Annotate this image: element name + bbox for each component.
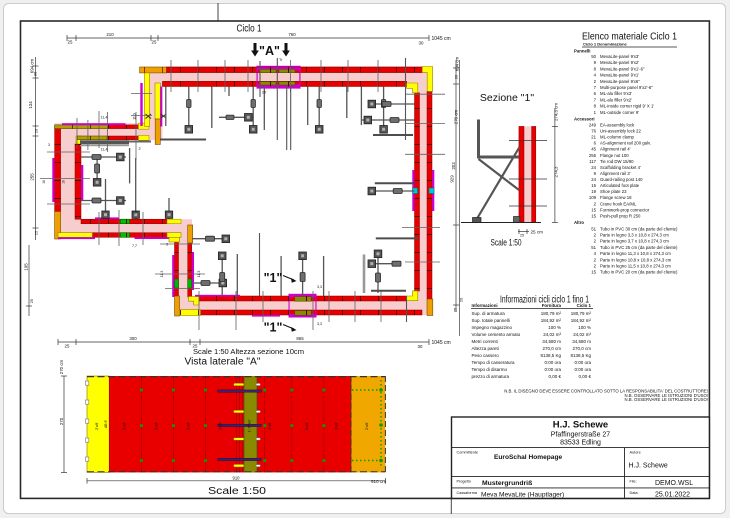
- svg-text:195: 195: [24, 263, 29, 271]
- svg-text:0:00 ora: 0:00 ora: [544, 367, 561, 372]
- svg-text:3'x9': 3'x9': [218, 422, 223, 430]
- svg-text:929: 929: [450, 175, 455, 183]
- svg-text:Peso cassero: Peso cassero: [472, 353, 500, 358]
- svg-text:24,02 m³: 24,02 m³: [543, 332, 561, 337]
- svg-text:Scale 1:50 Altezza sezione 1: Scale 1:50 Altezza sezione 10cm: [193, 347, 304, 356]
- svg-text:Accessori: Accessori: [574, 116, 595, 121]
- svg-text:910: 910: [233, 476, 241, 481]
- svg-text:3,3: 3,3: [317, 322, 322, 326]
- svg-text:1045 cm: 1045 cm: [432, 36, 451, 42]
- svg-text:694 cm: 694 cm: [30, 58, 35, 73]
- svg-text:Tubo in PVC 30 cm (da parte de: Tubo in PVC 30 cm (da parte del cliente): [600, 226, 678, 231]
- svg-text:File:: File:: [630, 480, 637, 484]
- svg-text:prezzo di armatura: prezzo di armatura: [472, 374, 510, 379]
- svg-text:MevaLite-panel 9'x1': MevaLite-panel 9'x1': [600, 73, 639, 78]
- svg-text:184,92 m²: 184,92 m²: [571, 318, 592, 323]
- svg-text:ML-column clamp: ML-column clamp: [600, 135, 635, 140]
- svg-text:Parte in legno 10,8 x 10,8 x 2: Parte in legno 10,8 x 10,8 x 274,3 cm: [600, 257, 672, 262]
- svg-text:EA-assembly lock: EA-assembly lock: [600, 122, 635, 127]
- svg-text:Guard-railing post 140: Guard-railing post 140: [600, 177, 643, 182]
- svg-text:20: 20: [34, 128, 39, 133]
- svg-text:7,7: 7,7: [132, 244, 137, 248]
- svg-text:25 cm: 25 cm: [531, 230, 544, 235]
- svg-text:Vista laterale "A": Vista laterale "A": [185, 357, 261, 368]
- svg-text:ML-alu filler 9'x2': ML-alu filler 9'x2': [600, 97, 632, 102]
- svg-text:Shoe plate 23: Shoe plate 23: [600, 189, 627, 194]
- svg-text:2'x9': 2'x9': [364, 422, 369, 430]
- svg-text:11,4: 11,4: [101, 148, 108, 152]
- svg-text:100 %: 100 %: [578, 325, 591, 330]
- svg-text:Tubo in PVC 20 cm (da parte de: Tubo in PVC 20 cm (da parte del cliente): [600, 270, 678, 275]
- svg-text:270: 270: [59, 417, 64, 425]
- svg-text:30: 30: [33, 71, 38, 76]
- svg-text:30: 30: [454, 74, 459, 79]
- svg-text:Committente: Committente: [457, 451, 479, 455]
- svg-text:117: 117: [589, 159, 596, 164]
- svg-text:30: 30: [419, 41, 424, 46]
- svg-text:Impegno magazzino: Impegno magazzino: [472, 325, 513, 330]
- svg-text:Ciclo 1: Ciclo 1: [237, 24, 262, 35]
- svg-text:Parte in legno 3,7 x 10,8 x 27: Parte in legno 3,7 x 10,8 x 274,3 cm: [600, 239, 669, 244]
- svg-text:15: 15: [591, 270, 596, 275]
- svg-text:Tie rod DW 15/90: Tie rod DW 15/90: [600, 159, 634, 164]
- svg-text:20: 20: [262, 91, 266, 95]
- svg-text:Ciclo 1: Ciclo 1: [577, 303, 592, 308]
- svg-text:270 cm: 270 cm: [59, 359, 64, 374]
- svg-text:Fornitura: Fornitura: [542, 303, 562, 308]
- svg-text:Cassaforma: Cassaforma: [457, 491, 478, 495]
- svg-text:25.01.2022: 25.01.2022: [655, 492, 690, 499]
- svg-text:DEMO.WSL: DEMO.WSL: [655, 480, 693, 487]
- svg-text:Autore: Autore: [630, 451, 641, 455]
- svg-text:24: 24: [591, 165, 596, 170]
- svg-text:H.J. Schewe: H.J. Schewe: [553, 420, 608, 431]
- svg-text:16: 16: [42, 180, 46, 184]
- svg-text:25: 25: [68, 40, 73, 45]
- svg-text:Flange nut 100: Flange nut 100: [600, 153, 629, 158]
- svg-text:0:00 ora: 0:00 ora: [574, 367, 591, 372]
- svg-text:249: 249: [589, 122, 597, 127]
- svg-text:34,580 m: 34,580 m: [572, 339, 591, 344]
- svg-text:11,3: 11,3: [160, 271, 164, 278]
- svg-text:Scaffolding bracket 4': Scaffolding bracket 4': [600, 165, 641, 170]
- svg-text:16: 16: [62, 180, 66, 184]
- svg-text:Crane hook EA/ML: Crane hook EA/ML: [600, 201, 637, 206]
- svg-text:Push-pull prop R 250: Push-pull prop R 250: [600, 213, 641, 218]
- svg-text:3,3: 3,3: [317, 285, 322, 289]
- svg-text:Alignment rail 4': Alignment rail 4': [600, 147, 631, 152]
- svg-text:ML-outside corner 9': ML-outside corner 9': [600, 110, 639, 115]
- svg-text:8138,5 Kg: 8138,5 Kg: [540, 353, 561, 358]
- svg-text:255: 255: [589, 153, 597, 158]
- svg-text:51: 51: [591, 226, 596, 231]
- svg-text:15: 15: [591, 207, 596, 212]
- svg-text:30: 30: [418, 344, 423, 349]
- svg-text:3'x9': 3'x9': [121, 422, 126, 430]
- svg-text:AB 9': AB 9': [104, 420, 108, 428]
- svg-text:Meva MevaLite (Hauptlager): Meva MevaLite (Hauptlager): [481, 491, 564, 498]
- svg-text:Volume cemento armato: Volume cemento armato: [472, 332, 521, 337]
- svg-text:Sezione "1": Sezione "1": [480, 92, 534, 104]
- svg-text:203: 203: [451, 162, 456, 170]
- svg-text:300: 300: [129, 336, 137, 341]
- svg-text:N.B. OSSERVARE LE ISTRUZIONI D: N.B. OSSERVARE LE ISTRUZIONI D'USO!: [624, 397, 708, 402]
- svg-text:Alignment rail 3': Alignment rail 3': [600, 171, 631, 176]
- svg-text:34,580 m: 34,580 m: [542, 339, 561, 344]
- svg-text:134: 134: [28, 101, 33, 109]
- svg-text:8138,5 Kg: 8138,5 Kg: [570, 353, 591, 358]
- svg-text:51: 51: [591, 245, 596, 250]
- svg-text:MevaLite-panel 9'x3': MevaLite-panel 9'x3': [600, 54, 639, 59]
- svg-text:Altezza pareti: Altezza pareti: [472, 346, 499, 351]
- svg-text:Tempo di disarmo: Tempo di disarmo: [472, 367, 508, 372]
- svg-text:694 cm: 694 cm: [455, 56, 460, 71]
- svg-text:2'x9': 2'x9': [94, 422, 99, 430]
- svg-text:Data:: Data:: [630, 491, 639, 495]
- svg-text:Pfaffingerstraße 27: Pfaffingerstraße 27: [551, 432, 611, 439]
- svg-text:24: 24: [591, 177, 596, 182]
- svg-text:1'-6"x9': 1'-6"x9': [247, 419, 252, 432]
- svg-text:20: 20: [459, 297, 464, 302]
- svg-text:25: 25: [152, 40, 157, 45]
- svg-text:270,0 cm: 270,0 cm: [542, 346, 561, 351]
- svg-text:Mustergrundriß: Mustergrundriß: [482, 480, 532, 487]
- svg-text:25: 25: [453, 307, 458, 312]
- svg-text:"1": "1": [264, 271, 283, 285]
- svg-text:ML-inside corner rigid 9' X 1': ML-inside corner rigid 9' X 1': [600, 104, 654, 109]
- svg-text:Altro: Altro: [574, 220, 584, 225]
- svg-text:184,92 m²: 184,92 m²: [541, 318, 562, 323]
- svg-text:109: 109: [589, 195, 597, 200]
- svg-text:Progetto: Progetto: [457, 480, 471, 484]
- svg-text:MevaLite-panel 9'x6": MevaLite-panel 9'x6": [600, 79, 640, 84]
- svg-text:15: 15: [591, 183, 596, 188]
- svg-text:1045 cm: 1045 cm: [432, 340, 451, 346]
- svg-text:3'x9': 3'x9': [267, 422, 272, 430]
- svg-text:180,79 m²: 180,79 m²: [541, 311, 562, 316]
- svg-text:180,79 m²: 180,79 m²: [571, 311, 592, 316]
- svg-text:3'x9': 3'x9': [153, 422, 158, 430]
- svg-text:0:00 ora: 0:00 ora: [544, 360, 561, 365]
- svg-text:270 cm: 270 cm: [454, 109, 459, 124]
- svg-text:45: 45: [591, 147, 596, 152]
- svg-text:Metri correnti: Metri correnti: [472, 339, 498, 344]
- svg-text:255: 255: [30, 173, 35, 181]
- svg-text:100 %: 100 %: [548, 325, 561, 330]
- svg-text:865: 865: [296, 336, 304, 341]
- svg-text:3'x9': 3'x9': [186, 422, 191, 430]
- svg-text:0,00 €: 0,00 €: [548, 374, 561, 379]
- svg-text:25: 25: [65, 344, 70, 349]
- svg-text:Scale 1:50: Scale 1:50: [208, 486, 267, 497]
- svg-text:ML-alu filler 9'x3': ML-alu filler 9'x3': [600, 91, 632, 96]
- svg-text:Multi-purpose panel 9'x2'-6": Multi-purpose panel 9'x2'-6": [600, 85, 653, 90]
- svg-text:7,7: 7,7: [132, 211, 137, 215]
- svg-text:19: 19: [591, 189, 596, 194]
- svg-text:3'x9': 3'x9': [304, 422, 309, 430]
- svg-text:25: 25: [29, 298, 34, 303]
- svg-text:24,02 m³: 24,02 m³: [573, 332, 591, 337]
- svg-text:Ciclo 1 Denominazione: Ciclo 1 Denominazione: [583, 42, 628, 47]
- svg-text:Scale 1:50: Scale 1:50: [491, 238, 522, 248]
- svg-text:274,3 cm: 274,3 cm: [554, 103, 559, 121]
- svg-text:Formwork-prop connector: Formwork-prop connector: [600, 207, 650, 212]
- svg-text:760: 760: [288, 32, 296, 37]
- svg-text:Tempo di casseratura: Tempo di casseratura: [472, 360, 516, 365]
- svg-text:83533 Edling: 83533 Edling: [560, 440, 601, 447]
- svg-text:270,0 cm: 270,0 cm: [572, 346, 591, 351]
- svg-text:"1": "1": [264, 321, 283, 335]
- svg-text:Articulated foot plate: Articulated foot plate: [600, 183, 640, 188]
- svg-text:Parte in legno 3,3 x 10,8 x 27: Parte in legno 3,3 x 10,8 x 274,3 cm: [600, 233, 669, 238]
- svg-text:Parte in legno 11,5 x 10,8 x 2: Parte in legno 11,5 x 10,8 x 274,3 cm: [600, 264, 671, 269]
- svg-text:910 cm: 910 cm: [371, 479, 386, 484]
- svg-text:0,00 €: 0,00 €: [578, 374, 591, 379]
- svg-text:21: 21: [591, 135, 596, 140]
- svg-text:Sup. di armatura: Sup. di armatura: [472, 311, 506, 316]
- svg-text:"A": "A": [259, 44, 280, 58]
- svg-text:Sup. totale pannelli: Sup. totale pannelli: [472, 318, 510, 323]
- svg-text:11,4: 11,4: [101, 116, 108, 120]
- svg-text:11,3: 11,3: [133, 113, 137, 120]
- svg-text:11,3: 11,3: [197, 271, 201, 278]
- svg-text:MevaLite-panel 9'x1'-6": MevaLite-panel 9'x1'-6": [600, 66, 645, 71]
- svg-text:Uni-assembly lock 22: Uni-assembly lock 22: [600, 129, 641, 134]
- svg-text:AS-alignment rail 200 galv.: AS-alignment rail 200 galv.: [600, 141, 651, 146]
- svg-text:25: 25: [34, 230, 39, 235]
- svg-text:3: 3: [166, 243, 168, 247]
- svg-text:Pannelli: Pannelli: [574, 49, 590, 54]
- svg-text:76: 76: [591, 129, 596, 134]
- svg-text:EuroSchal Homepage: EuroSchal Homepage: [494, 454, 562, 461]
- svg-text:Flange screw 18: Flange screw 18: [600, 195, 632, 200]
- svg-text:H.J. Schewe: H.J. Schewe: [629, 463, 668, 470]
- svg-text:15: 15: [591, 213, 596, 218]
- svg-text:2': 2': [139, 147, 142, 151]
- svg-text:274,3: 274,3: [554, 166, 559, 178]
- svg-text:3'x9': 3'x9': [334, 422, 339, 430]
- svg-text:210: 210: [106, 32, 114, 37]
- svg-text:Parte in legno 11,3 x 10,8 x 2: Parte in legno 11,3 x 10,8 x 274,3 cm: [600, 251, 671, 256]
- svg-text:MevaLite-panel 9'x2': MevaLite-panel 9'x2': [600, 60, 639, 65]
- svg-text:3: 3: [48, 143, 50, 147]
- svg-text:50: 50: [591, 54, 596, 59]
- svg-text:Informazioni: Informazioni: [472, 303, 498, 308]
- svg-text:Tubo in PVC 25 cm (da parte de: Tubo in PVC 25 cm (da parte del cliente): [600, 245, 678, 250]
- svg-text:0:00 ora: 0:00 ora: [574, 360, 591, 365]
